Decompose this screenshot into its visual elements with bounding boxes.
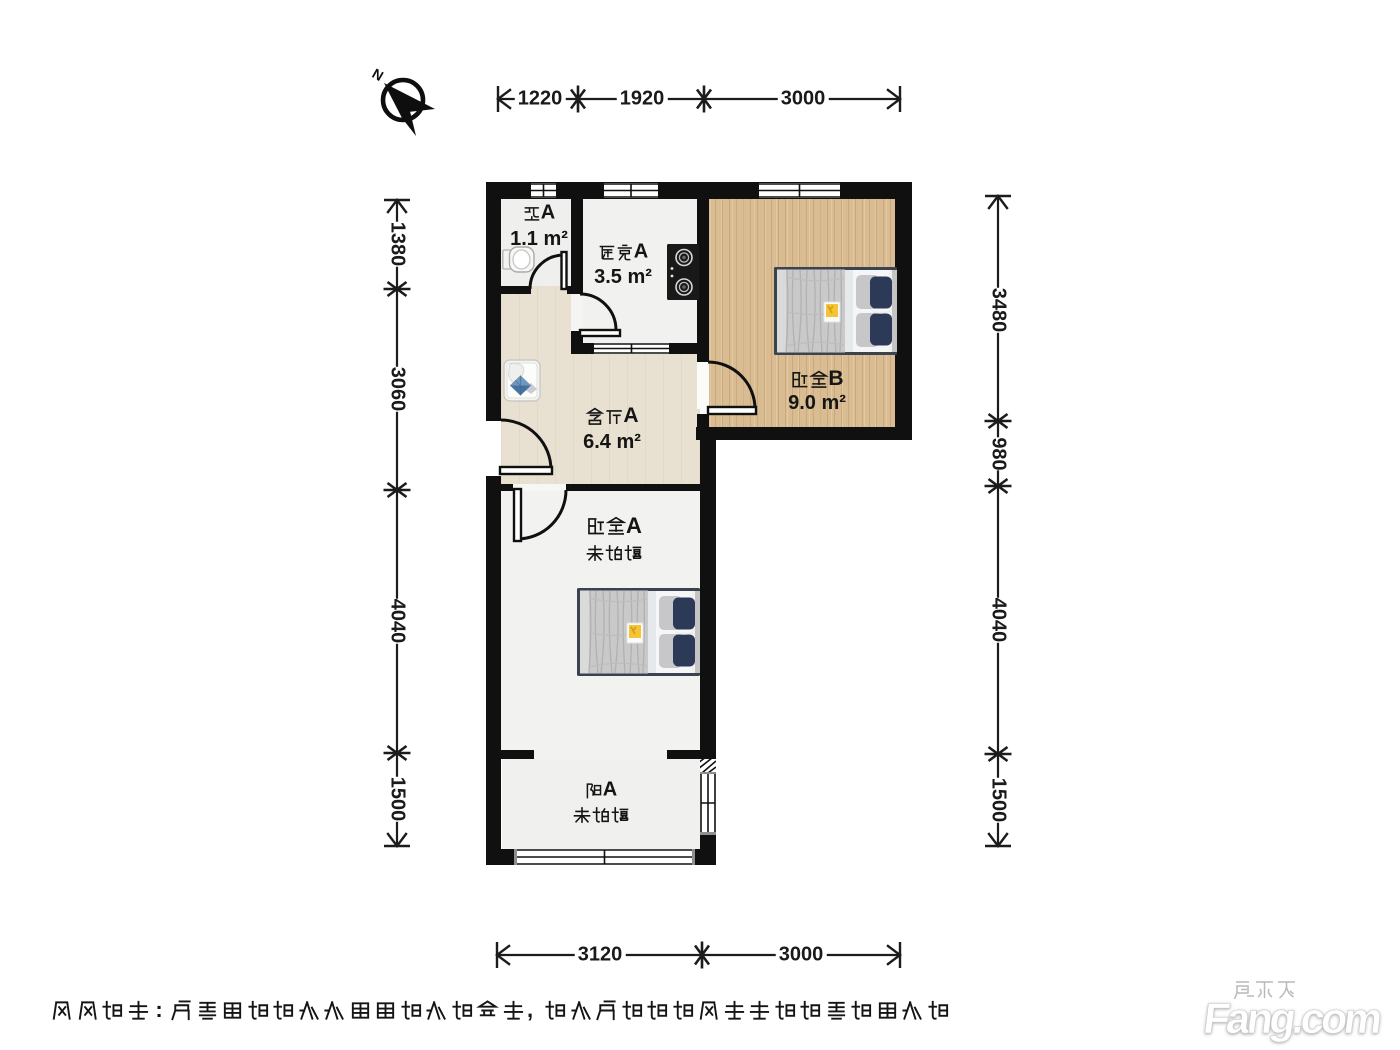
svg-text:N: N [370, 65, 387, 84]
svg-text:Fang.com: Fang.com [1201, 995, 1383, 1043]
